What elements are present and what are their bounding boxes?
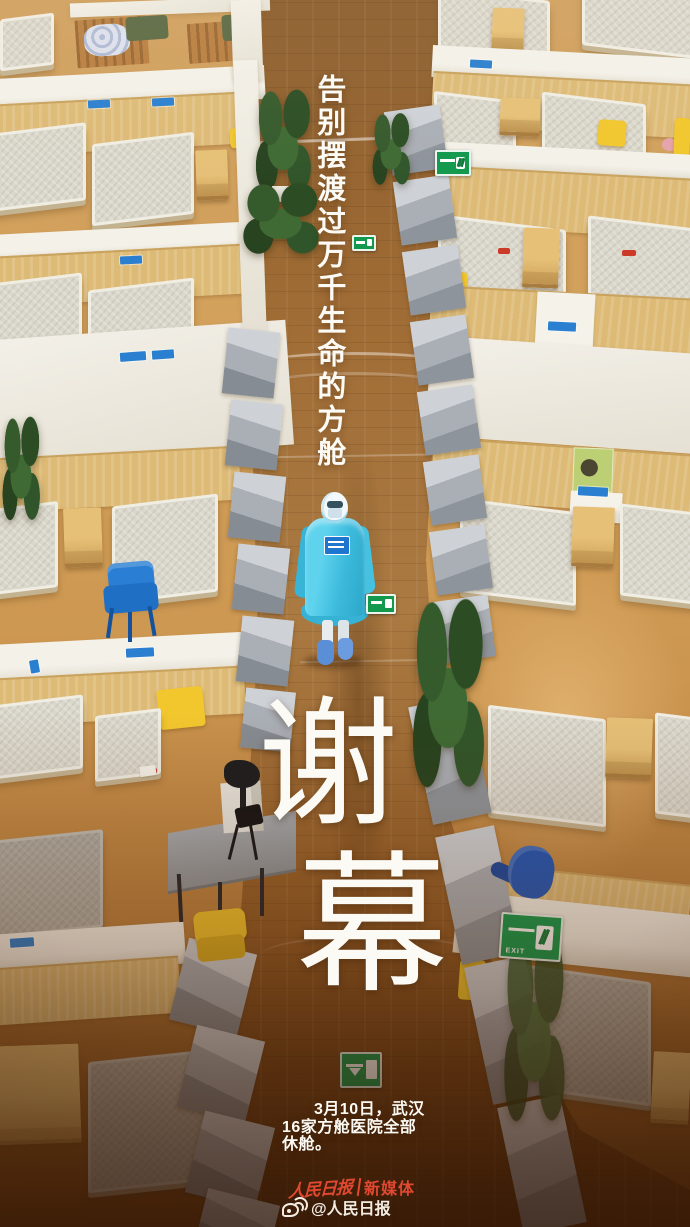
desk-leg <box>260 868 264 916</box>
exit-pictogram <box>366 1060 377 1079</box>
bed-number-label <box>152 97 174 106</box>
ppe-gown <box>305 518 365 616</box>
nightstand <box>499 97 540 136</box>
potted-plant <box>252 88 314 196</box>
bed-number-label <box>548 321 576 331</box>
ppe-mask <box>328 508 342 518</box>
exit-pictogram <box>385 599 392 609</box>
partition-block <box>429 524 493 595</box>
bed-number-label <box>120 351 147 362</box>
title-character-1: 谢 <box>258 696 398 836</box>
bed-number-label <box>152 349 175 360</box>
yellow-object <box>597 119 627 147</box>
partition-block <box>236 615 295 686</box>
vertical-headline: 告别摆渡过万千生命的方舱 <box>312 74 344 470</box>
exit-pictogram <box>367 239 373 246</box>
exit-sign-icon <box>435 150 471 176</box>
exit-sign-icon <box>352 235 376 251</box>
exit-sign-icon: EXIT <box>498 912 563 962</box>
bed-mattress <box>655 712 690 818</box>
exit-down-arrow <box>349 1068 361 1082</box>
partition-block <box>410 314 474 385</box>
chair-leg <box>128 612 132 642</box>
fan-head-icon <box>224 760 260 788</box>
exit-sign-icon <box>340 1052 382 1088</box>
exit-runner-pictogram <box>456 157 466 169</box>
caption-line-1: 3月10日，武汉 <box>282 1101 438 1119</box>
exit-runner-pictogram <box>535 926 554 951</box>
partition-block <box>228 471 287 542</box>
bed-mattress <box>0 13 54 72</box>
person-in-ppe <box>298 492 372 674</box>
partition-block <box>417 384 481 455</box>
potted-plant <box>0 415 42 525</box>
ppe-boot <box>317 640 334 665</box>
ppe-goggles <box>327 501 343 508</box>
potted-plant <box>408 596 488 796</box>
yellow-chair <box>194 910 248 966</box>
bed-mattress <box>488 705 606 827</box>
partition-block <box>232 543 291 614</box>
weibo-icon <box>282 1197 308 1217</box>
red-debris <box>622 250 636 256</box>
potted-plant <box>370 112 412 188</box>
chair-back <box>196 934 246 963</box>
partition-panel <box>139 765 156 777</box>
nightstand <box>195 149 229 200</box>
bag-body <box>504 842 558 901</box>
bed-number-label <box>120 255 142 264</box>
blue-plastic-chair <box>100 562 162 640</box>
footer-divider <box>357 1178 361 1196</box>
yellow-object <box>156 686 206 731</box>
poster-canvas: EXIT 告别摆渡过万千生命的方舱 谢 幕 3月10日，武汉 16家方舱医院全部… <box>0 0 690 1227</box>
caption-block: 3月10日，武汉 16家方舱医院全部 休舱。 <box>282 1101 438 1154</box>
potted-plant <box>238 182 323 257</box>
exit-arrow <box>508 927 534 932</box>
nightstand <box>522 227 560 288</box>
bed-number-label <box>470 59 492 68</box>
nightstand <box>605 717 653 779</box>
red-debris <box>498 248 510 254</box>
nightstand <box>571 506 615 567</box>
exit-arrow <box>371 601 383 604</box>
bed-mattress <box>620 503 690 604</box>
exit-arrow <box>346 1064 363 1067</box>
partition-block <box>423 454 487 525</box>
exit-arrow <box>356 241 365 244</box>
bed-mattress <box>582 0 690 59</box>
green-bedding <box>125 15 169 42</box>
caption-line-2: 16家方舱医院全部 <box>282 1119 438 1137</box>
brand-row: 人民日报 新媒体 <box>288 1176 415 1198</box>
bed-number-label <box>578 486 608 497</box>
partition-block <box>225 399 284 470</box>
chair-leg <box>147 606 156 636</box>
bed-mattress <box>0 694 83 779</box>
partition-block <box>222 327 281 398</box>
exit-arrow <box>440 159 454 162</box>
bed-mattress <box>92 132 194 227</box>
blue-bag-on-bed <box>490 846 552 908</box>
bed-mattress <box>0 122 86 212</box>
bed-mattress <box>0 829 103 939</box>
bed-headboard <box>0 956 182 1026</box>
title-character-2: 幕 <box>296 850 448 1002</box>
bed-number-label <box>126 647 154 657</box>
ppe-boot <box>338 638 353 660</box>
nightstand <box>0 1044 82 1146</box>
nightstand <box>650 1051 690 1125</box>
nightstand <box>63 507 103 567</box>
weibo-pupil <box>287 1209 291 1213</box>
bed-number-label <box>10 937 35 948</box>
partition-block <box>402 244 466 315</box>
publisher-footer: 人民日报 新媒体 @人民日报 <box>282 1176 415 1219</box>
exit-sign-icon <box>366 594 396 614</box>
exit-sign-label: EXIT <box>505 948 525 956</box>
ppe-name-badge <box>324 536 350 555</box>
bed-number-label <box>88 99 110 108</box>
caption-line-3: 休舱。 <box>282 1136 438 1154</box>
